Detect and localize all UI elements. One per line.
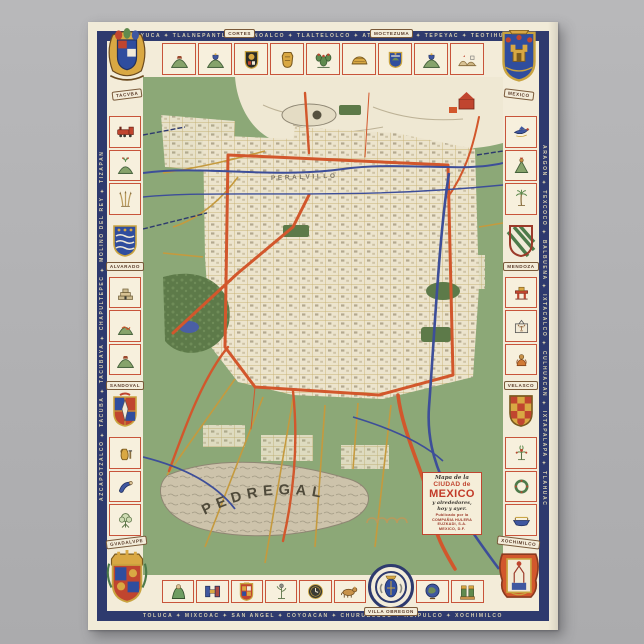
alvarado-arms-icon xyxy=(110,221,140,261)
left-cells-lower xyxy=(109,437,141,536)
frame-text-right: ARAGON ✦ TEXCOCO ✦ BALBUENA ✦ IXTACALCO … xyxy=(541,145,547,506)
frame-band-right: ARAGON ✦ TEXCOCO ✦ BALBUENA ✦ IXTACALCO … xyxy=(539,31,549,621)
pyramid-icon xyxy=(114,282,137,303)
border-emblem-monk xyxy=(162,580,194,603)
mendoza-shield: MENDOZA xyxy=(505,217,537,275)
cartouche-publisher: Publicado por la COMPAÑIA HULERA EUZKADI… xyxy=(425,513,479,531)
arm-icon xyxy=(114,476,137,497)
coyote-icon xyxy=(338,581,361,602)
hill-bell-icon xyxy=(204,49,227,70)
hill-cap-icon xyxy=(168,49,191,70)
corner-crest-xochimilco: XOCHIMILCO xyxy=(486,538,552,624)
border-emblem-palm xyxy=(505,183,537,215)
train-icon xyxy=(114,121,137,142)
frame-text-top: TENAYUCA ✦ TLALNEPANTLA ✦ NONOALCO ✦ TLA… xyxy=(121,33,525,39)
hill-snake-icon xyxy=(114,316,137,337)
shield-ornate-icon xyxy=(235,581,258,602)
border-emblem-dome xyxy=(342,43,376,75)
deer-house-icon xyxy=(510,316,533,337)
border-emblem-bird-blue xyxy=(505,116,537,148)
border-emblem-pyramid xyxy=(109,277,141,309)
border-emblem-bird-plant xyxy=(265,580,297,603)
villa-obregon-medallion: VILLA OBREGON xyxy=(368,564,414,610)
border-emblem-flower xyxy=(505,437,537,469)
corner-crest-tacuba: TACVBA xyxy=(94,28,160,114)
cartouche-line2: CIUDAD de xyxy=(425,481,479,488)
tacuba-crest-icon xyxy=(101,28,153,90)
border-emblem-shield-blue xyxy=(378,43,412,75)
mexico-ribbon: MEXICO xyxy=(504,88,535,101)
mendoza-arms-icon xyxy=(506,221,536,261)
xochimilco-crest-icon xyxy=(493,547,545,609)
border-emblem-hill-cap xyxy=(162,43,196,75)
corner-crest-guadalupe: GVADALVPE xyxy=(94,538,160,624)
reeds-icon xyxy=(114,188,137,209)
villa-obregon-ribbon: VILLA OBREGON xyxy=(364,607,418,616)
border-emblem-wreath xyxy=(505,471,537,503)
border-emblem-jug xyxy=(109,437,141,469)
corner-crest-mexico: MEXICO xyxy=(486,28,552,114)
border-top-cells xyxy=(162,43,484,75)
tree-icon xyxy=(114,510,137,531)
sandoval-arms-icon xyxy=(110,391,140,431)
frame-band-top: TENAYUCA ✦ TLALNEPANTLA ✦ NONOALCO ✦ TLA… xyxy=(97,31,549,41)
boat-icon xyxy=(510,510,533,531)
alvarado-ribbon: ALVARADO xyxy=(106,262,144,271)
altar-icon xyxy=(510,282,533,303)
border-emblem-shield-cortes xyxy=(234,43,268,75)
border-emblem-hill-plant xyxy=(109,150,141,182)
mendoza-ribbon: MENDOZA xyxy=(503,262,538,271)
border-emblem-mountains xyxy=(450,43,484,75)
frame-band-left: AZCAPOTZALCO ✦ TACUBA ✦ TACUBAYA ✦ CHAPU… xyxy=(97,31,107,621)
hill-cap-icon xyxy=(114,349,137,370)
cactus-icon xyxy=(312,49,335,70)
hill-plant-icon xyxy=(114,155,137,176)
border-emblem-train xyxy=(109,116,141,148)
monk-icon xyxy=(167,581,190,602)
border-emblem-cactus xyxy=(306,43,340,75)
border-emblem-deer-house xyxy=(505,310,537,342)
villa-obregon-seal-icon xyxy=(374,570,408,604)
cartouche-line5: hoy y ayer. xyxy=(425,506,479,512)
border-emblem-tree xyxy=(109,504,141,536)
hill-bell-icon xyxy=(420,49,443,70)
wreath-icon xyxy=(510,476,533,497)
border-left-cells: ALVARADO SANDOVAL xyxy=(109,116,141,536)
border-emblem-figures-two xyxy=(451,580,484,603)
left-cells-mid xyxy=(109,277,141,376)
palm-icon xyxy=(510,188,533,209)
guadalupe-crest-icon xyxy=(101,547,153,609)
border-emblem-shield-ornate xyxy=(231,580,263,603)
border-bottom-right-cells xyxy=(416,580,484,603)
right-cells-upper xyxy=(505,116,537,215)
border-emblem-coyote xyxy=(334,580,366,603)
sandoval-ribbon: SANDOVAL xyxy=(106,381,144,390)
alvarado-shield: ALVARADO xyxy=(109,217,141,275)
title-cartouche: Mapa de la CIUDAD de MEXICO y alrededore… xyxy=(422,472,482,535)
left-cells-upper xyxy=(109,116,141,215)
shield-gold-icon xyxy=(276,49,299,70)
border-emblem-figure-orange xyxy=(505,344,537,376)
clock-icon xyxy=(304,581,327,602)
border-emblem-reeds xyxy=(109,183,141,215)
moctezuma-banner: MOCTEZUMA xyxy=(370,29,413,38)
tacuba-ribbon: TACVBA xyxy=(111,88,142,101)
cortes-banner: CORTES xyxy=(224,29,255,38)
dome-icon xyxy=(348,49,371,70)
velasco-shield: VELASCO xyxy=(505,377,537,435)
flower-icon xyxy=(510,443,533,464)
map-poster: TENAYUCA ✦ TLALNEPANTLA ✦ NONOALCO ✦ TLA… xyxy=(88,22,558,630)
border-emblem-arm xyxy=(109,471,141,503)
border-emblem-figure-green xyxy=(505,150,537,182)
right-cells-mid xyxy=(505,277,537,376)
globe-icon xyxy=(421,581,444,602)
figures-two-icon xyxy=(456,581,479,602)
frame-text-left: AZCAPOTZALCO ✦ TACUBA ✦ TACUBAYA ✦ CHAPU… xyxy=(99,151,105,502)
shield-cortes-icon xyxy=(240,49,263,70)
shield-blue-icon xyxy=(384,49,407,70)
bird-blue-icon xyxy=(510,121,533,142)
jug-icon xyxy=(114,443,137,464)
border-emblem-glyph-h xyxy=(196,580,228,603)
frame-text-bottom: TOLUCA ✦ MIXCOAC ✦ SAN ANGEL ✦ COYOACAN … xyxy=(143,613,503,619)
border-right-cells: MENDOZA VELASCO xyxy=(505,116,537,536)
cartouche-title: MEXICO xyxy=(425,488,479,500)
border-emblem-clock xyxy=(299,580,331,603)
border-emblem-hill-cap xyxy=(109,344,141,376)
mountains-icon xyxy=(456,49,479,70)
sandoval-shield: SANDOVAL xyxy=(109,377,141,435)
figure-orange-icon xyxy=(510,349,533,370)
frame-band-bottom: TOLUCA ✦ MIXCOAC ✦ SAN ANGEL ✦ COYOACAN … xyxy=(97,611,549,621)
velasco-ribbon: VELASCO xyxy=(504,381,538,390)
bird-plant-icon xyxy=(270,581,293,602)
border-emblem-shield-gold xyxy=(270,43,304,75)
border-emblem-hill-snake xyxy=(109,310,141,342)
mexico-crest-icon xyxy=(493,28,545,90)
border-emblem-hill-bell xyxy=(198,43,232,75)
border-emblem-globe xyxy=(416,580,449,603)
border-emblem-hill-bell xyxy=(414,43,448,75)
border-emblem-boat xyxy=(505,504,537,536)
glyph-h-icon xyxy=(201,581,224,602)
velasco-arms-icon xyxy=(506,391,536,431)
border-bottom-left-cells xyxy=(162,580,366,603)
border-bottom-cells: VILLA OBREGON xyxy=(162,575,484,607)
right-cells-lower xyxy=(505,437,537,536)
border-emblem-altar xyxy=(505,277,537,309)
figure-green-icon xyxy=(510,155,533,176)
